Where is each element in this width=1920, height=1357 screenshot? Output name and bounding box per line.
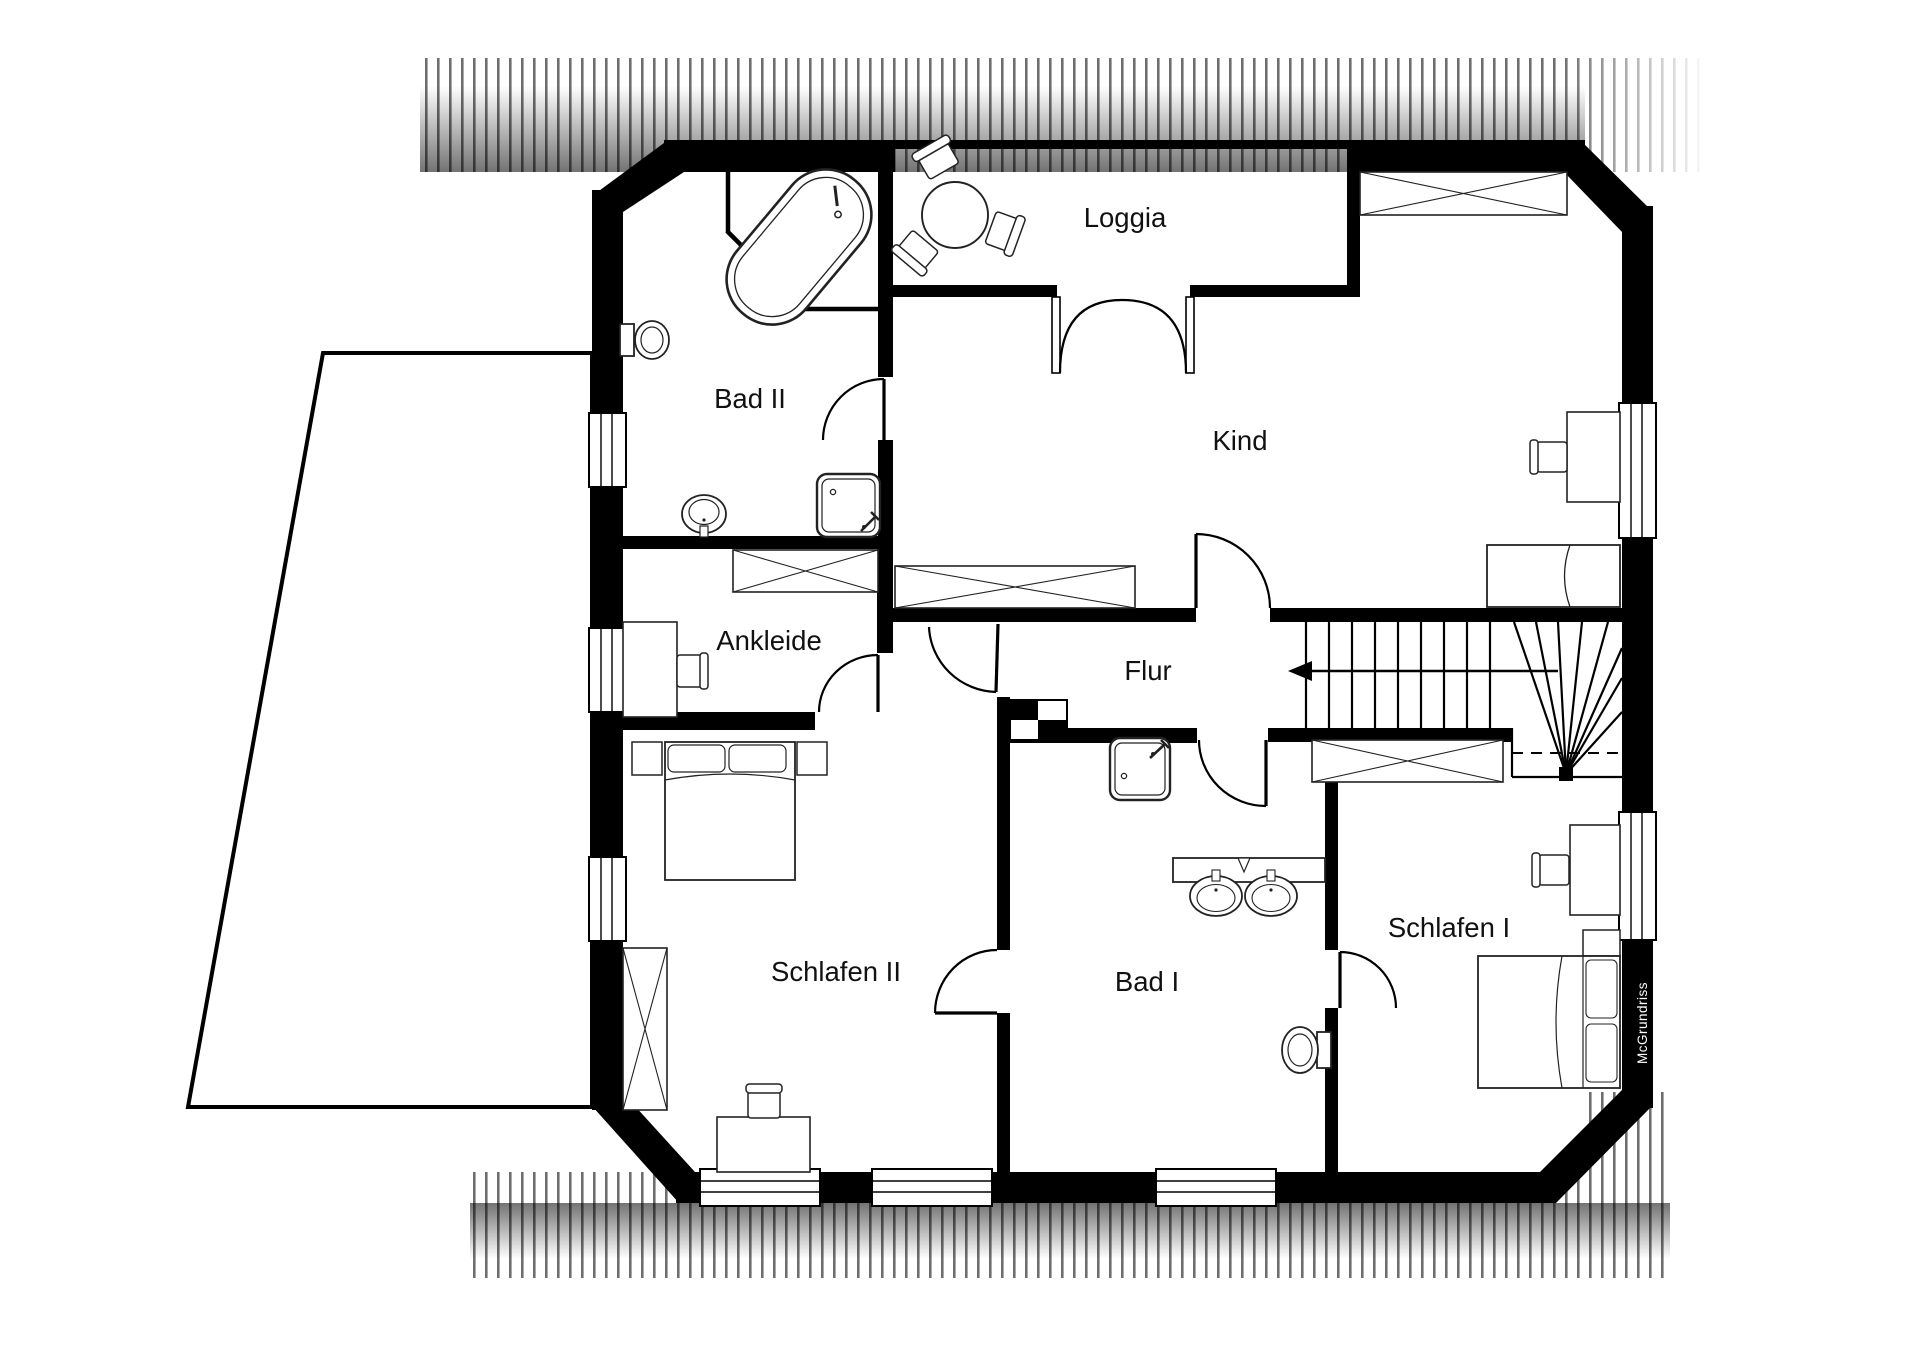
watermark-text: McGrundriss	[1635, 982, 1650, 1064]
label-bad1: Bad I	[1115, 966, 1179, 997]
window-bottom-schlafen1	[1156, 1169, 1276, 1206]
double-bed-icon	[665, 742, 795, 880]
wardrobe-icon	[1312, 740, 1503, 782]
chair-icon	[746, 1084, 782, 1118]
wall-schlafen2-bad1-upper	[997, 697, 1010, 950]
window-right-kind	[1619, 403, 1656, 538]
label-ankleide: Ankleide	[716, 625, 822, 656]
window-left-ankleide	[589, 628, 626, 712]
shower-icon	[817, 474, 880, 537]
wall-loggia-bottom-right	[1190, 285, 1360, 297]
floorplan-page: Bad II Loggia Kind Ankleide Flur Schlafe…	[0, 0, 1920, 1357]
wardrobe-icon	[1360, 172, 1567, 215]
wall-kind-bottom-right	[1270, 608, 1622, 622]
nightstand-icon	[1583, 930, 1620, 956]
label-bad2: Bad II	[714, 383, 786, 414]
wall-schlafen2-bad1-lower	[997, 1013, 1010, 1172]
wall-right	[1622, 206, 1653, 1108]
wardrobe-icon	[733, 550, 878, 592]
wall-loggia-bottom-left	[893, 285, 1057, 297]
window-right-schlafen1	[1619, 812, 1656, 940]
stair-newel-post	[1559, 767, 1573, 781]
shower-icon	[1110, 738, 1170, 800]
wall-top-left	[664, 140, 895, 172]
wall-kind-bottom-left	[893, 608, 1196, 622]
label-kind: Kind	[1212, 425, 1267, 456]
sideboard-icon	[895, 566, 1135, 608]
label-schlafen1: Schlafen I	[1388, 912, 1510, 943]
wardrobe-icon	[623, 948, 667, 1110]
roof-shadow-bottom	[470, 1203, 1670, 1259]
wall-bad2-right-upper	[878, 140, 893, 377]
chair-icon	[1532, 853, 1569, 887]
chair-icon	[1530, 440, 1567, 474]
window-left-bad2	[589, 413, 626, 487]
round-table-icon	[922, 182, 988, 248]
chimney	[1010, 700, 1067, 740]
chair-icon	[677, 653, 708, 689]
nightstand-icon	[797, 742, 827, 775]
nightstand-icon	[632, 742, 662, 775]
desk-icon	[1570, 825, 1620, 915]
label-flur: Flur	[1124, 655, 1171, 686]
window-left-schlafen2	[589, 857, 626, 941]
loggia-parapet	[892, 140, 1360, 149]
floorplan-drawing: Bad II Loggia Kind Ankleide Flur Schlafe…	[0, 0, 1920, 1357]
label-loggia: Loggia	[1084, 202, 1167, 233]
wall-top-right	[1357, 140, 1585, 172]
window-bottom-schlafen2	[700, 1169, 820, 1206]
double-bed-icon	[1478, 956, 1620, 1088]
desk-icon	[1567, 412, 1620, 502]
toilet-icon	[1282, 1027, 1331, 1073]
window-bottom-bad1	[872, 1169, 992, 1206]
single-bed-icon	[1487, 545, 1620, 607]
dresser-icon	[623, 622, 677, 717]
wall-ankleide-right	[877, 548, 893, 653]
toilet-icon	[620, 321, 669, 359]
label-schlafen2: Schlafen II	[771, 956, 901, 987]
desk-icon	[717, 1117, 810, 1172]
